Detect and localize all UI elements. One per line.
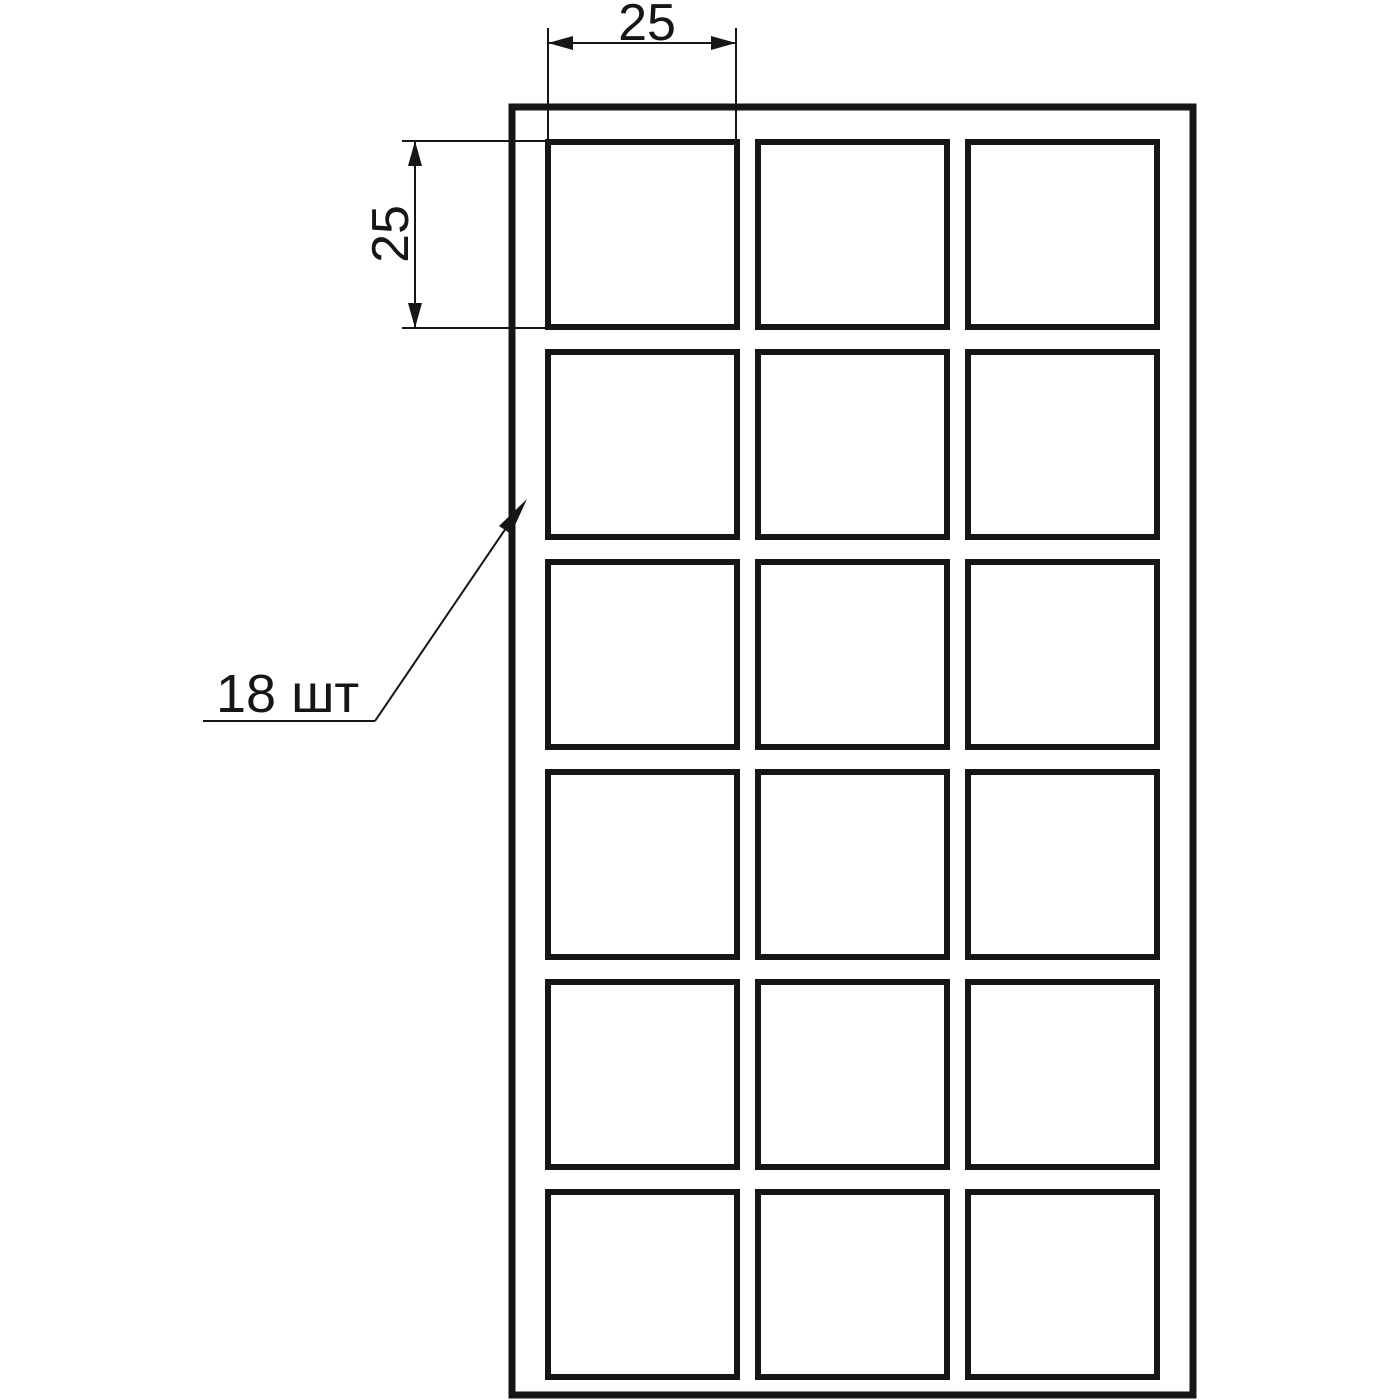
label-cell (968, 562, 1157, 747)
label-cell (758, 352, 947, 537)
dimension-height-value: 25 (362, 205, 420, 263)
label-cell (968, 142, 1157, 327)
label-cell (758, 772, 947, 957)
drawing-canvas: 25 25 18 шт (0, 0, 1400, 1400)
label-cell (758, 562, 947, 747)
label-cell (758, 142, 947, 327)
label-cell (968, 352, 1157, 537)
label-cell (548, 982, 737, 1167)
dimension-width-value: 25 (618, 0, 676, 52)
label-cell (758, 982, 947, 1167)
label-cell (968, 772, 1157, 957)
label-cell (548, 1192, 737, 1377)
label-cell (548, 142, 737, 327)
label-cell (968, 1192, 1157, 1377)
callout-label: 18 шт (216, 664, 359, 724)
label-cell (548, 562, 737, 747)
label-cell (548, 772, 737, 957)
label-cell (758, 1192, 947, 1377)
label-cell (968, 982, 1157, 1167)
label-cell (548, 352, 737, 537)
technical-drawing: 25 25 18 шт (0, 0, 1400, 1400)
